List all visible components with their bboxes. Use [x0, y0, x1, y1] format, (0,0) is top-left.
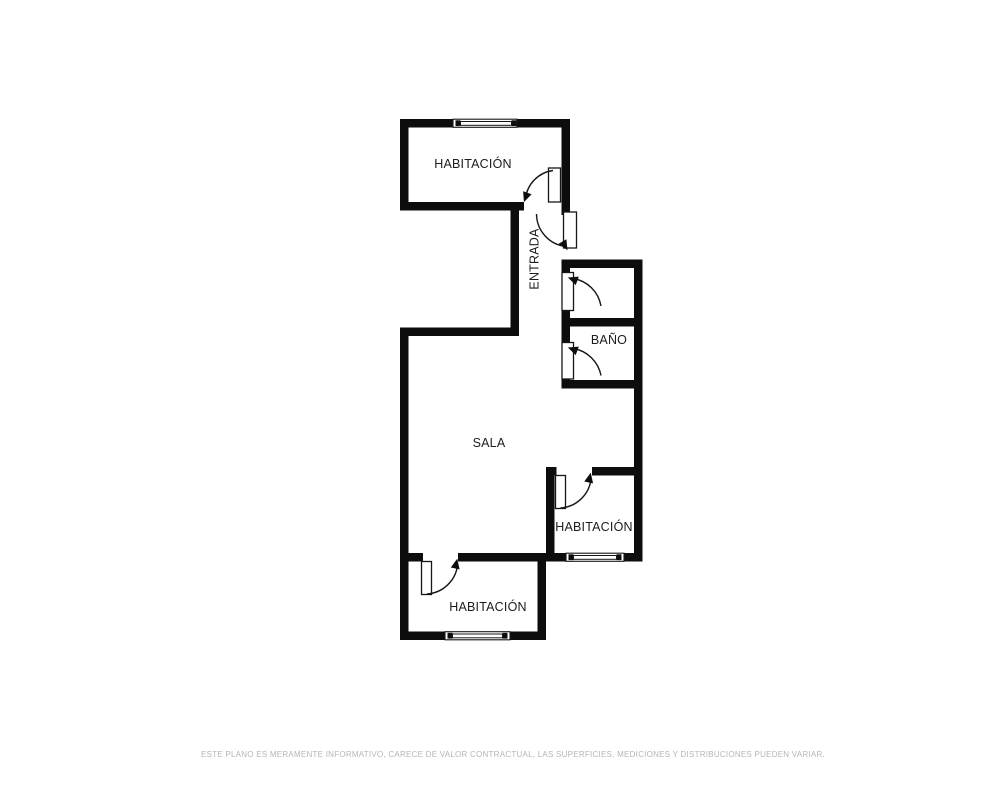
window-icon	[566, 553, 624, 561]
wall	[562, 119, 571, 215]
wall	[400, 119, 409, 211]
door-swing-icon	[520, 168, 561, 204]
wall	[562, 318, 643, 327]
room-label-entrada: ENTRADA	[528, 228, 542, 290]
wall	[592, 467, 643, 476]
wall	[400, 202, 524, 211]
floor-plan-page: HABITACIÓN ENTRADA BAÑO SALA HABITACIÓN …	[0, 0, 1000, 800]
wall	[562, 380, 643, 389]
room-label-habitacion-bottom: HABITACIÓN	[449, 599, 526, 614]
disclaimer-text: ESTE PLANO ES MERAMENTE INFORMATIVO, CAR…	[13, 750, 1000, 759]
floor-plan-canvas: HABITACIÓN ENTRADA BAÑO SALA HABITACIÓN …	[0, 0, 1000, 800]
room-label-habitacion-middle: HABITACIÓN	[555, 519, 632, 534]
window-icon	[453, 119, 517, 127]
room-label-sala: SALA	[473, 436, 506, 450]
wall	[634, 260, 643, 562]
door-swing-icon	[537, 212, 577, 252]
wall	[546, 467, 555, 562]
room-label-bano: BAÑO	[591, 333, 627, 347]
door-swing-icon	[556, 472, 596, 509]
door-swing-icon	[422, 558, 462, 595]
window-icon	[445, 632, 510, 640]
wall	[511, 210, 520, 336]
wall	[400, 328, 409, 641]
wall	[400, 328, 519, 337]
wall	[538, 553, 547, 640]
door-swing-icon	[562, 343, 601, 380]
wall	[400, 553, 423, 562]
room-label-habitacion-top: HABITACIÓN	[434, 156, 511, 171]
wall	[562, 260, 643, 269]
wall	[562, 260, 571, 275]
door-swing-icon	[562, 273, 601, 311]
